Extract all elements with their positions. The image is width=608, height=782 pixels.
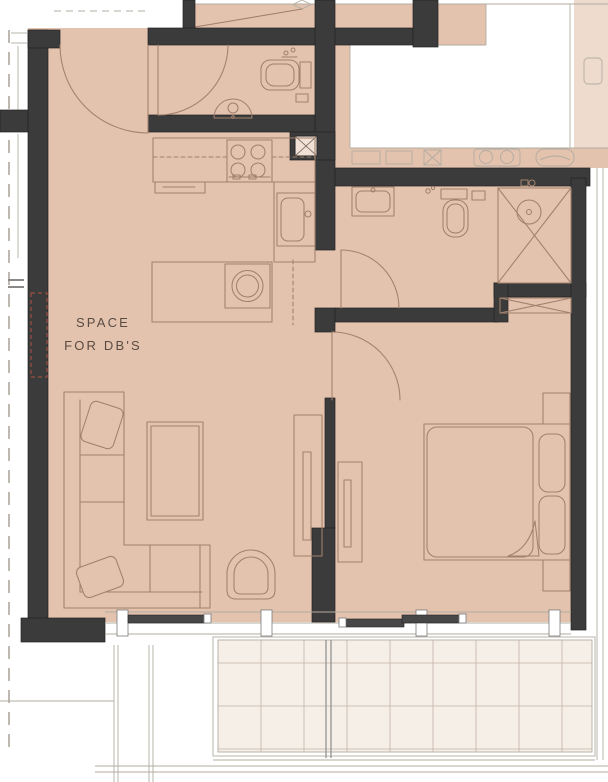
db-space-label-line1: SPACE bbox=[76, 315, 130, 330]
wall-top-entry bbox=[28, 30, 60, 48]
wall-ensuite-top bbox=[335, 168, 590, 186]
wall-ensuite-bottom-left bbox=[335, 308, 498, 322]
floor-plan-canvas: SPACE FOR DB'S bbox=[0, 0, 608, 782]
wall-top bbox=[148, 28, 413, 45]
shaft-box bbox=[295, 136, 317, 156]
wall-divider-thick bbox=[312, 528, 335, 622]
window-mullion bbox=[261, 610, 272, 636]
window-mullion bbox=[549, 610, 560, 636]
wall-central-upper bbox=[315, 0, 335, 250]
wall-bottom-left-corner bbox=[21, 618, 105, 642]
wall-central-pier bbox=[315, 308, 335, 332]
stove bbox=[227, 140, 272, 182]
sliding-door-leaf bbox=[128, 615, 206, 623]
window-mullion bbox=[117, 610, 128, 636]
wall-left-exterior bbox=[28, 30, 48, 622]
wall-stub-left bbox=[0, 110, 28, 132]
wall-right-exterior bbox=[571, 178, 586, 630]
wall-top-leg bbox=[413, 0, 438, 47]
sliding-door-leaf bbox=[402, 615, 460, 623]
balcony bbox=[213, 637, 595, 760]
db-space-label-line2: FOR DB'S bbox=[64, 338, 142, 353]
wall-divider-thin bbox=[325, 398, 335, 528]
wall-top-leg-2 bbox=[183, 0, 195, 28]
wall-ensuite-step bbox=[494, 283, 508, 322]
floor-plan: SPACE FOR DB'S bbox=[0, 0, 608, 782]
sliding-door-leaf bbox=[346, 619, 404, 627]
